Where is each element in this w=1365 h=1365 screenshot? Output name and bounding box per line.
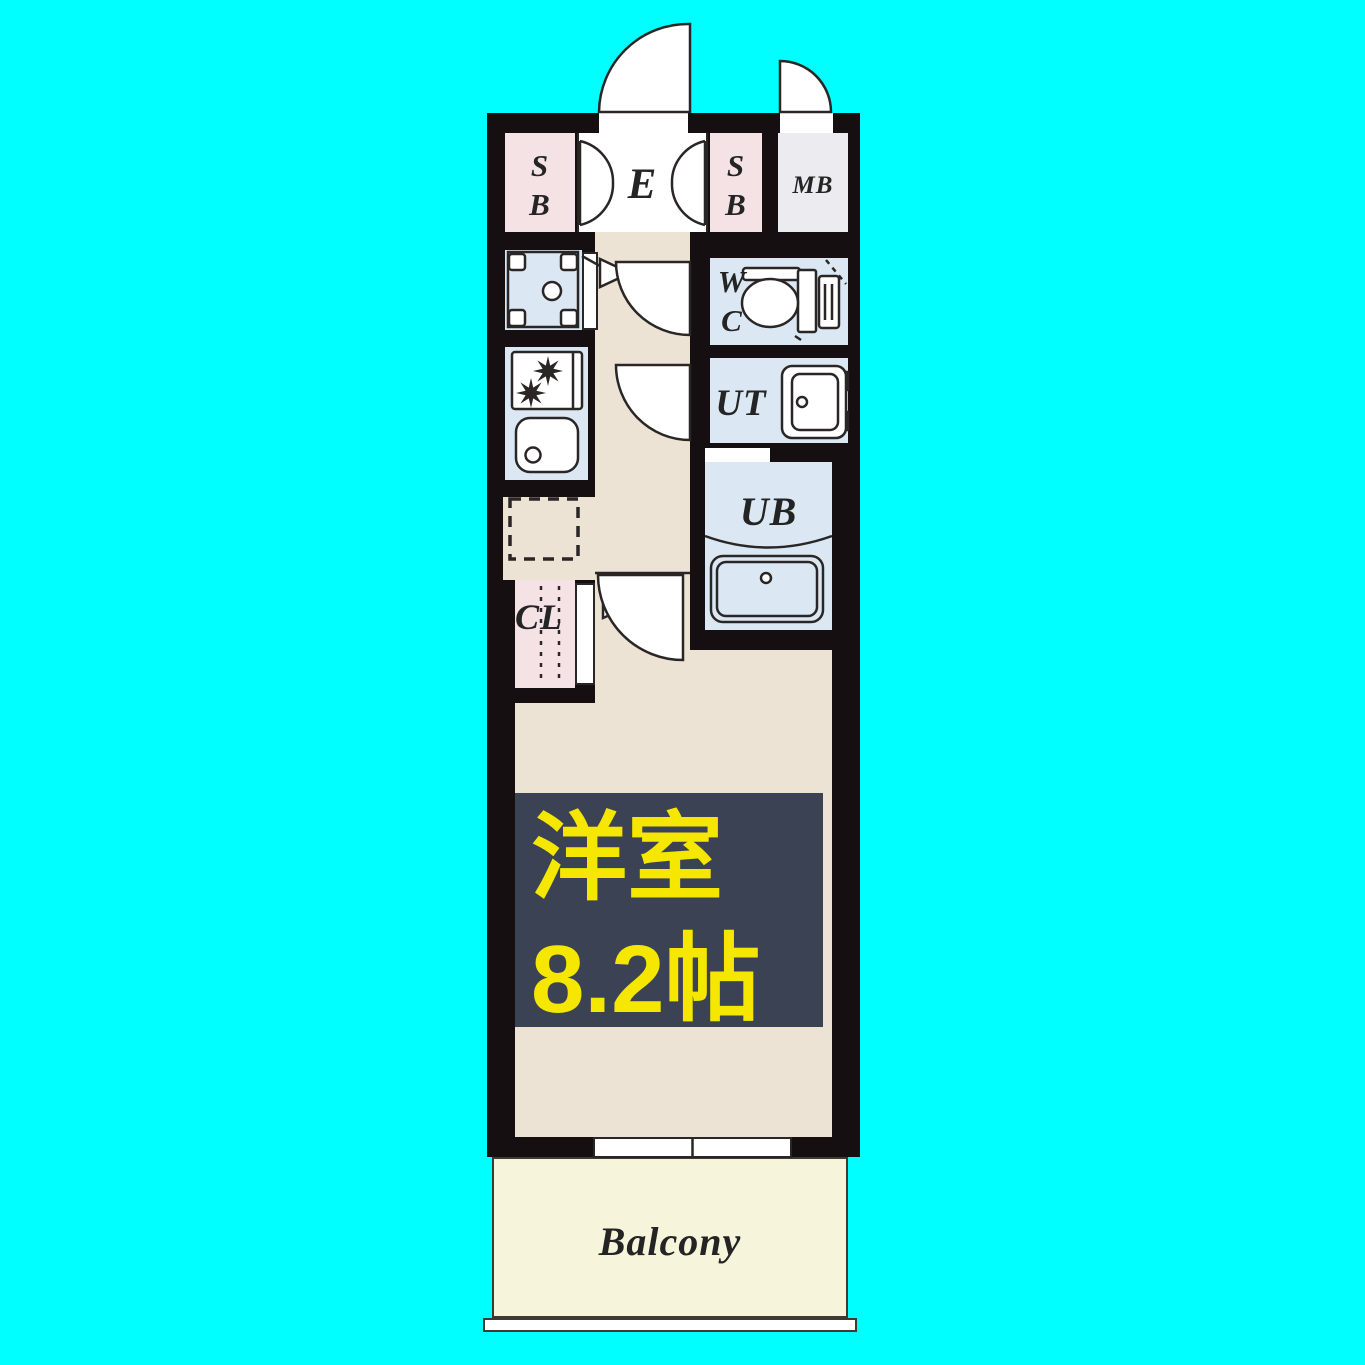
fridge-niche-floor [503, 497, 595, 580]
shoe-box-right-label: S B [710, 146, 762, 224]
shoe-box-left-label: S B [505, 146, 575, 224]
hallway-floor [595, 232, 690, 573]
kitchen-area [505, 347, 588, 480]
washer-niche [505, 250, 582, 330]
closet-sliding-panel [575, 583, 595, 685]
balcony-label: Balcony [492, 1218, 848, 1265]
balcony-rail [483, 1318, 857, 1332]
entrance-label: E [577, 160, 708, 209]
room-size-text: 8.2帖 [515, 914, 823, 1035]
meter-box-label: MB [778, 172, 848, 200]
sliding-window [593, 1137, 792, 1158]
ub-label: UB [705, 488, 832, 535]
room-floor-upper-right [690, 650, 832, 703]
ut-label: UT [708, 382, 774, 425]
room-name-text: 洋室 [515, 793, 823, 914]
washer-niche-door-panel [582, 252, 598, 330]
ub-door-threshold [705, 448, 770, 462]
floor-plan: 洋室 8.2帖 [0, 0, 1365, 1365]
hallway-floor-lower [595, 573, 690, 703]
closet-label: CL [506, 596, 572, 638]
wc-label: W C [710, 262, 754, 340]
room-size-label-box: 洋室 8.2帖 [515, 793, 823, 1027]
